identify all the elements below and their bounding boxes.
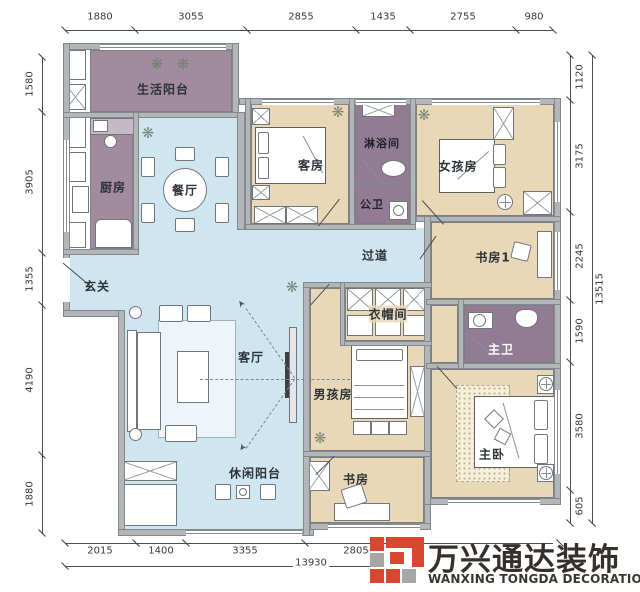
fan-symbol (497, 194, 513, 210)
plant-icon: ❋ (332, 103, 345, 121)
balcony-cabinet (123, 484, 177, 526)
room-label-living-balcony: 生活阳台 (137, 81, 189, 98)
stove (72, 186, 89, 213)
pillow (258, 157, 269, 179)
dim-line-left (42, 57, 43, 533)
wall (63, 112, 239, 118)
wall (245, 98, 251, 230)
room-floor-master-alcove (431, 305, 458, 363)
logo-mark-cell (370, 569, 384, 583)
window (186, 530, 302, 536)
dim-label-total-bottom: 13930 (293, 558, 329, 569)
dim-label: 2245 (575, 241, 586, 270)
logo-mark-cell (386, 569, 400, 583)
bathtub-oval (381, 160, 406, 177)
blanket-stripe (354, 397, 404, 398)
wall (424, 216, 431, 505)
coffee-table (177, 351, 209, 403)
room-label-corridor: 过道 (362, 247, 388, 264)
logo-mark-cell (370, 553, 384, 567)
balcony-chair (215, 484, 231, 500)
window (262, 99, 334, 105)
armchair (187, 305, 211, 322)
dim-label: 1580 (25, 69, 36, 98)
vanity-basin (473, 314, 486, 327)
wall (340, 341, 432, 346)
dim-label: 1435 (368, 12, 397, 23)
study-cabinet (308, 461, 330, 491)
dim-label: 2015 (85, 546, 114, 557)
dim-line-right-total (592, 55, 593, 523)
dim-label: 3055 (176, 12, 205, 23)
dim-label-total-right: 13515 (595, 271, 606, 307)
window (554, 122, 560, 202)
nightstand (252, 185, 270, 200)
dim-label: 3905 (25, 167, 36, 196)
window (448, 499, 540, 505)
room-label-girl: 女孩房 (438, 158, 477, 175)
wall (303, 282, 432, 288)
room-floor-corridor-west (239, 228, 303, 315)
boy-wardrobe (410, 366, 425, 417)
sofa-back (127, 330, 137, 432)
wall (303, 286, 310, 536)
wall (458, 299, 464, 369)
plant-icon: ❋ (142, 124, 155, 142)
room-label-public-bath: 公卫 (360, 196, 384, 212)
pillow (356, 349, 403, 361)
logo-company-name-en: WANXING TONGDA DECORATION (428, 572, 640, 586)
guest-wardrobe (286, 206, 318, 224)
study1-desk (537, 231, 552, 278)
kitchen-sink (93, 120, 108, 132)
study-desk (334, 503, 390, 521)
room-label-cloakroom: 衣帽间 (368, 306, 407, 323)
boy-shelf (371, 421, 389, 435)
room-label-living: 客厅 (238, 349, 264, 366)
window (554, 232, 560, 290)
dim-label: 3580 (575, 411, 586, 440)
room-label-kitchen: 厨房 (100, 179, 126, 196)
room-label-study1: 书房1 (475, 249, 510, 266)
chair (215, 203, 229, 223)
side-table (129, 428, 142, 441)
pillow (534, 400, 548, 430)
room-label-leisure-balcony: 休闲阳台 (229, 465, 281, 482)
nightstand (252, 108, 270, 125)
armchair (165, 425, 197, 442)
plant-icon: ❋ (314, 429, 327, 447)
floor-plan-canvas: ➤ ➤ ❋ ❋ ❋ ❋ ❋ ❋ ❋ 生活阳台 厨房 餐厅 玄关 客厅 休闲阳台 … (0, 0, 640, 592)
wall (237, 112, 245, 230)
plant-icon: ❋ (418, 106, 431, 124)
chair (141, 157, 155, 177)
sight-line (200, 379, 350, 380)
logo-mark-cell (370, 537, 384, 551)
fridge (95, 219, 132, 248)
side-table (129, 306, 142, 319)
dim-label: 1400 (146, 546, 175, 557)
balcony-cabinet (123, 461, 177, 481)
room-label-study: 书房 (343, 471, 369, 488)
dim-label: 2755 (448, 12, 477, 23)
balcony-chair (260, 484, 276, 500)
blanket-stripe (354, 409, 404, 410)
wall (118, 310, 125, 536)
dim-label: 2855 (286, 12, 315, 23)
dim-label: 3175 (575, 141, 586, 170)
wall (355, 183, 410, 185)
pillow (258, 132, 269, 154)
dim-line-right (570, 55, 571, 523)
room-label-entry: 玄关 (84, 278, 110, 295)
plant-icon: ❋ (177, 55, 190, 73)
wall (133, 112, 139, 255)
wall (303, 451, 431, 457)
pillow (493, 144, 506, 165)
dim-label: 1880 (25, 479, 36, 508)
logo-mark-glyph-inner (390, 552, 404, 564)
wall (349, 98, 355, 230)
chair (215, 157, 229, 177)
room-label-dining: 餐厅 (172, 182, 198, 199)
pillow (534, 434, 548, 464)
toilet (515, 309, 538, 328)
wall (426, 299, 561, 305)
guest-wardrobe (254, 206, 286, 224)
pillow (493, 167, 506, 188)
window (432, 99, 540, 105)
dim-label: 4190 (25, 365, 36, 394)
room-label-master: 主卧 (479, 446, 505, 463)
dim-label: 1880 (85, 12, 114, 23)
balcony-table-plant (239, 488, 247, 496)
wc-sink-basin (393, 205, 404, 216)
window (100, 44, 226, 50)
dim-label: 1120 (575, 62, 586, 91)
dim-label: 3355 (230, 546, 259, 557)
company-logo: 万兴通达装饰 WANXING TONGDA DECORATION (368, 535, 638, 590)
plant-icon: ❋ (151, 55, 164, 73)
fan-symbol (539, 466, 553, 480)
boy-shelf (389, 421, 407, 435)
chair (141, 203, 155, 223)
dim-label: 980 (522, 12, 545, 23)
room-label-boy: 男孩房 (313, 386, 352, 403)
dim-line-top (65, 30, 553, 31)
chair (175, 147, 195, 161)
wall (340, 282, 345, 346)
girl-wardrobe (493, 107, 514, 140)
window (356, 99, 406, 105)
room-label-shower: 淋浴间 (364, 135, 400, 151)
logo-mark-cell (402, 569, 416, 583)
chair (175, 218, 195, 232)
plant-icon: ❋ (286, 278, 299, 296)
vent-box (362, 103, 395, 117)
wall (63, 249, 139, 255)
logo-mark-glyph-right (412, 537, 424, 567)
wall (426, 363, 561, 369)
dim-label: 2805 (341, 546, 370, 557)
wall (410, 98, 416, 230)
window (63, 140, 69, 232)
dim-label: 1355 (25, 264, 36, 293)
kitchen-pot (104, 135, 117, 148)
wall (245, 224, 416, 230)
fan-symbol (539, 377, 553, 391)
armchair (159, 305, 183, 322)
blanket-stripe (354, 385, 404, 386)
room-label-master-bath: 主卫 (488, 341, 514, 358)
wall (232, 43, 239, 118)
boy-shelf (353, 421, 371, 435)
dim-label: 1590 (575, 316, 586, 345)
room-label-guest: 客房 (298, 157, 324, 174)
window (554, 390, 560, 474)
window (328, 524, 420, 530)
dim-label: 605 (575, 494, 586, 517)
sofa-seat (137, 332, 161, 430)
corner-wardrobe (523, 191, 552, 215)
wall (63, 310, 125, 317)
